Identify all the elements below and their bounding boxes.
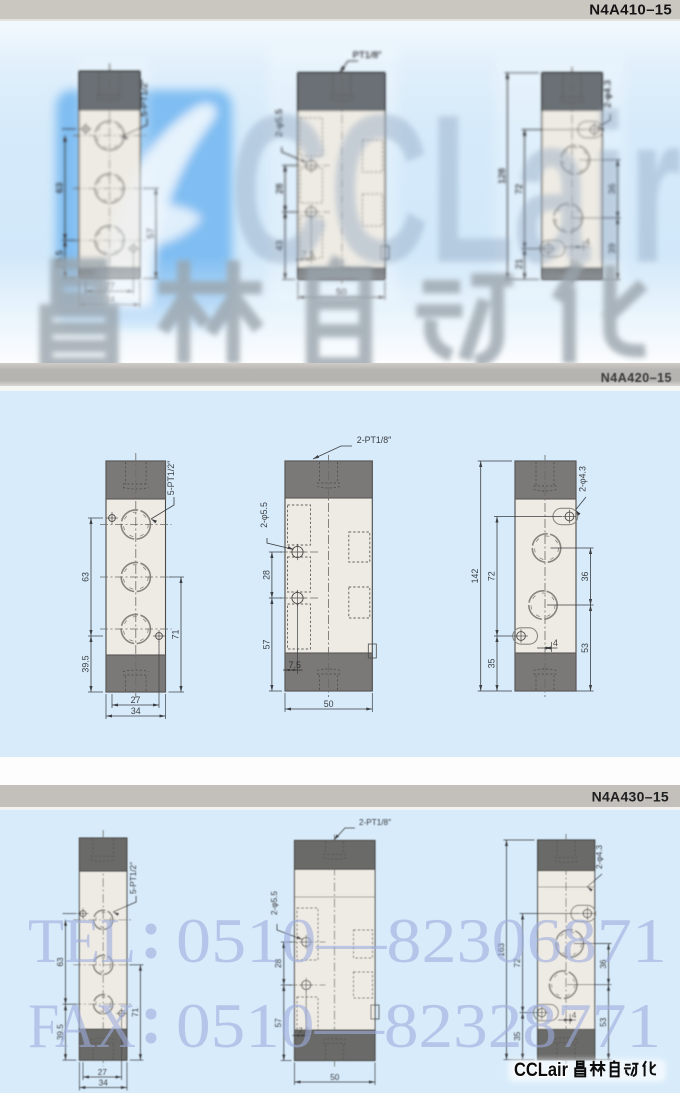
svg-text:39.5: 39.5 [80, 655, 90, 672]
svg-text:N4A430–15: N4A430–15 [592, 789, 669, 805]
svg-text:FAX: FAX [28, 990, 136, 1061]
svg-text:4: 4 [553, 638, 558, 648]
svg-text:2-PT1/8″: 2-PT1/8″ [357, 435, 391, 445]
svg-text:N4A420–15: N4A420–15 [601, 371, 672, 385]
svg-text:0510—82306871: 0510—82306871 [176, 905, 667, 976]
svg-text:2-φ5.5: 2-φ5.5 [259, 502, 269, 528]
svg-text:35: 35 [486, 659, 496, 669]
svg-text:CCLair: CCLair [514, 1060, 569, 1081]
svg-text:7.5: 7.5 [289, 660, 301, 670]
svg-text:PT1/8″: PT1/8″ [353, 50, 382, 61]
svg-text:5-PT1/2″: 5-PT1/2″ [129, 862, 138, 894]
svg-text:0510—82328771: 0510—82328771 [176, 990, 661, 1061]
svg-text:53: 53 [580, 643, 590, 653]
svg-text:2-PT1/8″: 2-PT1/8″ [359, 818, 391, 827]
svg-text:27: 27 [131, 695, 141, 705]
svg-text:72: 72 [486, 571, 496, 581]
svg-text:50: 50 [324, 699, 334, 709]
svg-text:N4A410–15: N4A410–15 [589, 2, 672, 19]
svg-text:34: 34 [99, 1078, 109, 1087]
svg-text:36: 36 [580, 572, 590, 582]
svg-text:2-φ4.3: 2-φ4.3 [595, 845, 604, 869]
svg-text:34: 34 [131, 706, 141, 716]
svg-text:2-φ4.3: 2-φ4.3 [578, 466, 588, 492]
svg-text:28: 28 [261, 570, 271, 580]
svg-text:63: 63 [80, 572, 90, 582]
svg-text:5-PT1/2″: 5-PT1/2″ [166, 461, 176, 495]
svg-text:57: 57 [261, 640, 271, 650]
svg-text:71: 71 [170, 630, 180, 640]
svg-text:27: 27 [98, 1068, 108, 1077]
svg-text:142: 142 [470, 569, 480, 584]
svg-text:50: 50 [330, 1073, 340, 1082]
svg-text:63: 63 [54, 183, 65, 194]
svg-text:TEL: TEL [28, 905, 136, 976]
svg-text:5-PT1/2″: 5-PT1/2″ [139, 79, 150, 117]
